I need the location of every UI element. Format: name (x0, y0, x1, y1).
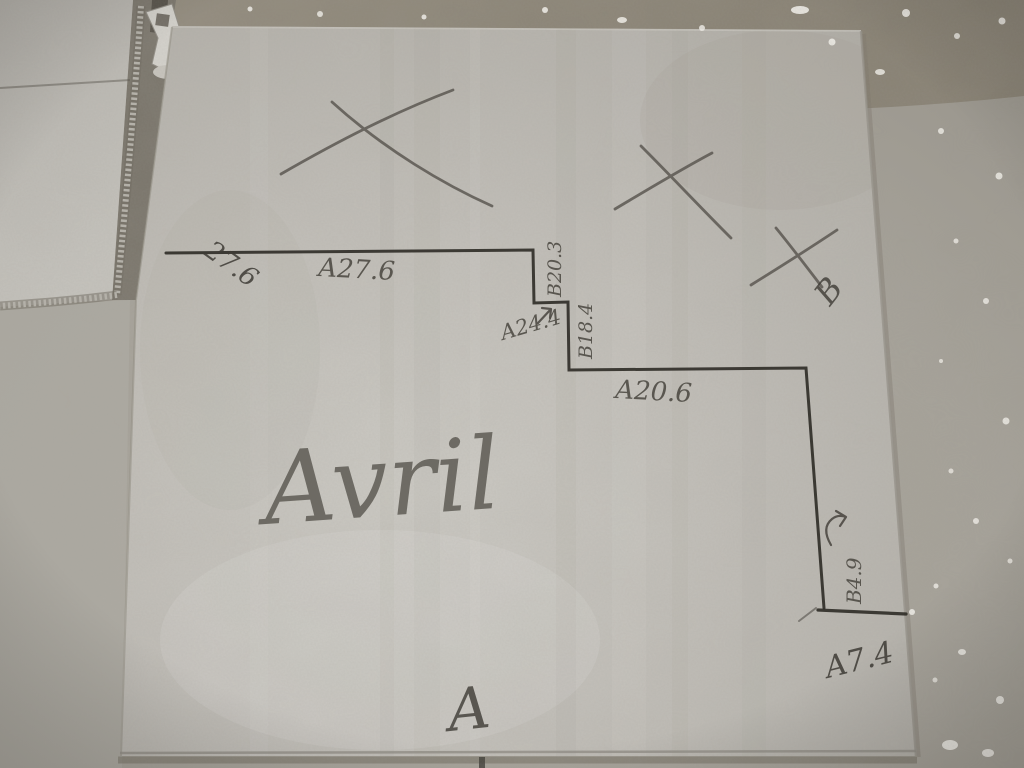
vignette-overlay (0, 0, 1024, 768)
scene-canvas: 27.6 A27.6 B20.3 A24.4 B18.4 A20.6 B4.9 … (0, 0, 1024, 768)
photo-of-marked-tile: 27.6 A27.6 B20.3 A24.4 B18.4 A20.6 B4.9 … (0, 0, 1024, 768)
